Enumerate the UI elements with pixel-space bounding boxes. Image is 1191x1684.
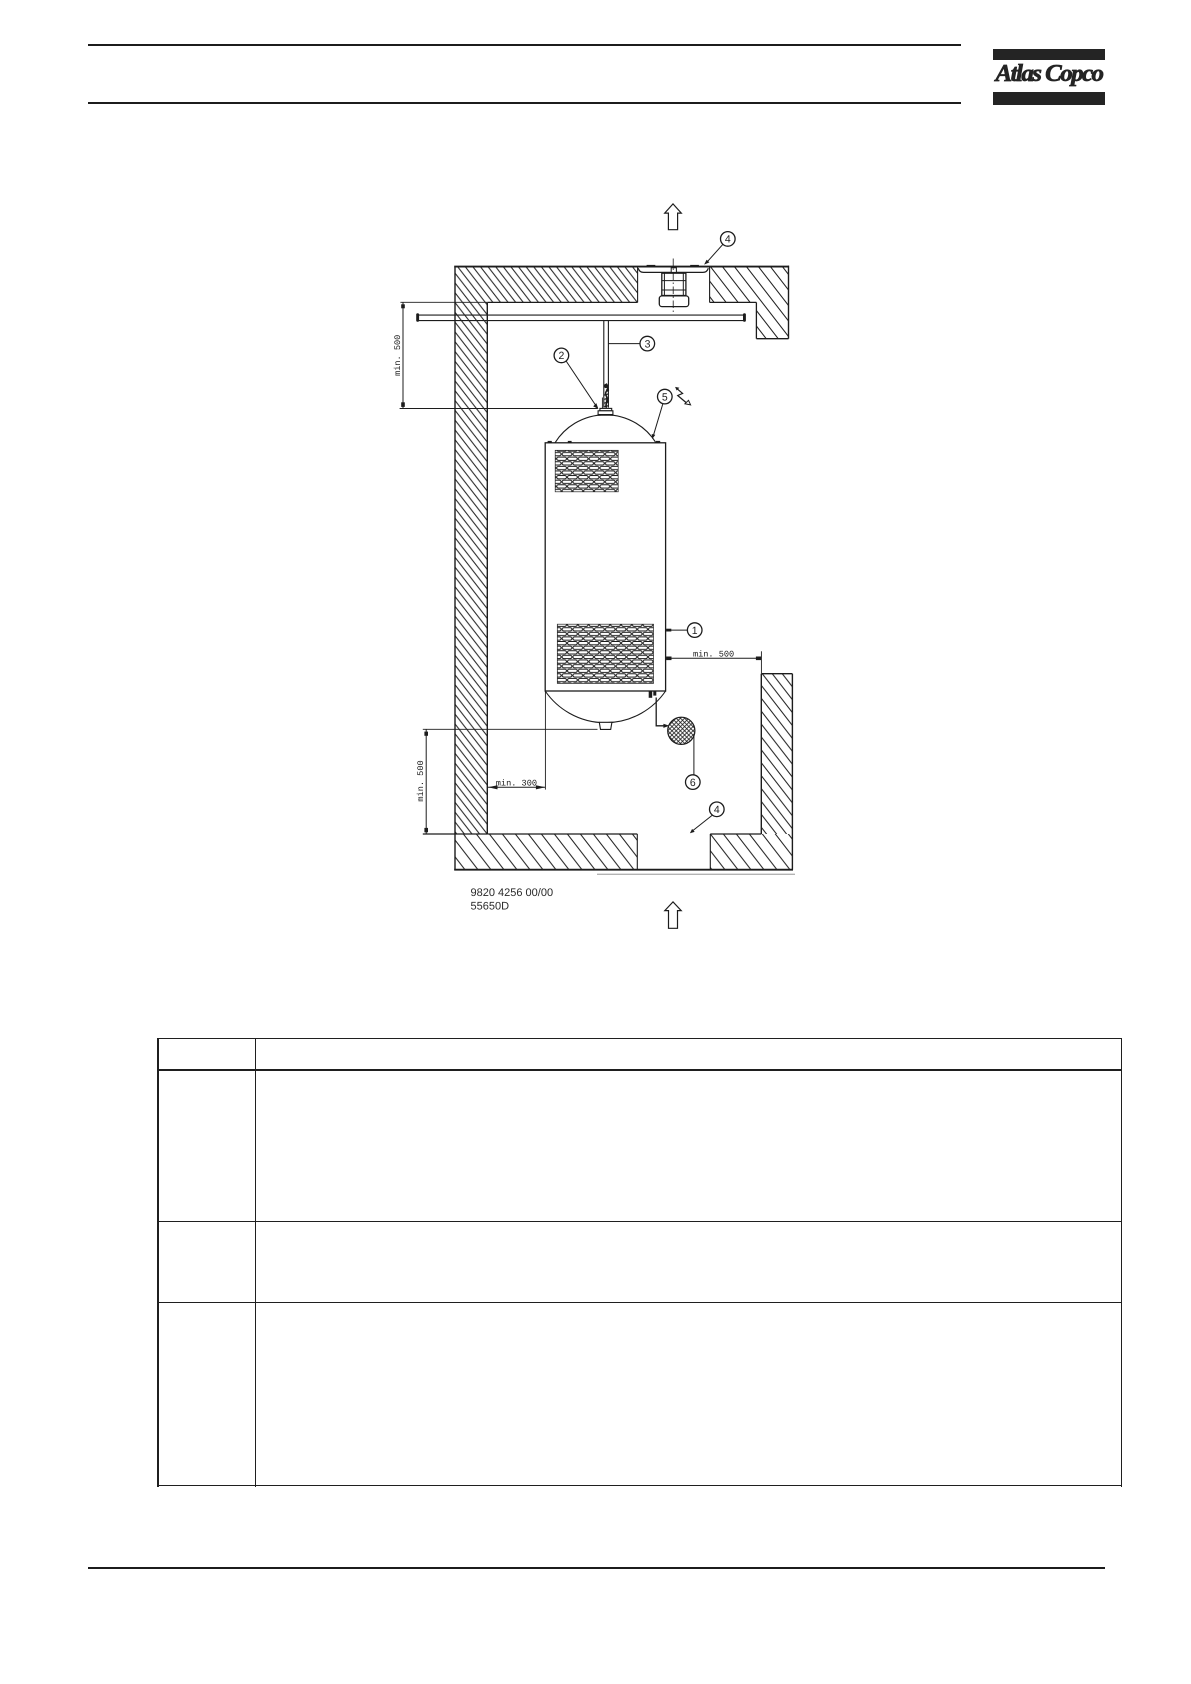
svg-text:6: 6	[690, 777, 696, 789]
svg-text:min. 500: min. 500	[693, 650, 734, 660]
svg-text:4: 4	[725, 234, 731, 246]
svg-text:min. 500: min. 500	[416, 760, 426, 801]
svg-text:1: 1	[692, 625, 698, 637]
svg-text:3: 3	[645, 338, 651, 350]
svg-text:2: 2	[558, 350, 564, 362]
svg-text:9820 4256 00/00: 9820 4256 00/00	[471, 887, 554, 899]
svg-text:5: 5	[662, 391, 668, 403]
svg-text:min. 500: min. 500	[393, 335, 403, 376]
svg-text:4: 4	[714, 804, 720, 816]
svg-text:min. 300: min. 300	[496, 779, 537, 789]
svg-text:55650D: 55650D	[471, 901, 510, 913]
